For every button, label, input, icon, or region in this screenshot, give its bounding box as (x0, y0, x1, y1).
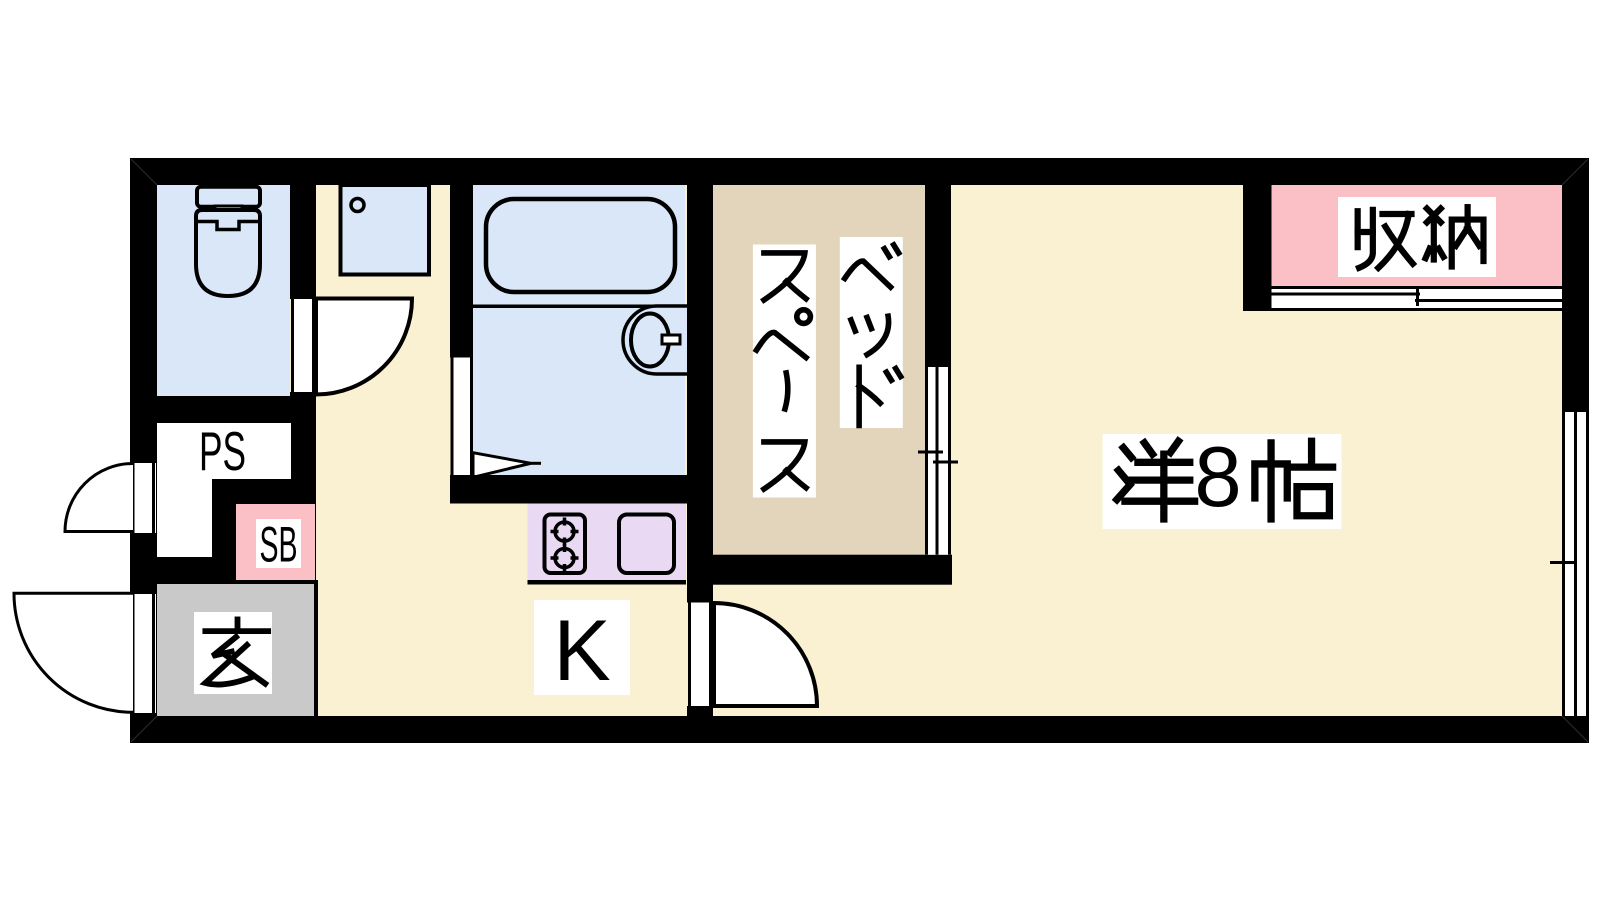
svg-text:PS: PS (199, 420, 246, 482)
svg-text:SB: SB (260, 517, 298, 573)
svg-text:K: K (553, 603, 610, 699)
svg-text:8: 8 (1194, 430, 1241, 525)
